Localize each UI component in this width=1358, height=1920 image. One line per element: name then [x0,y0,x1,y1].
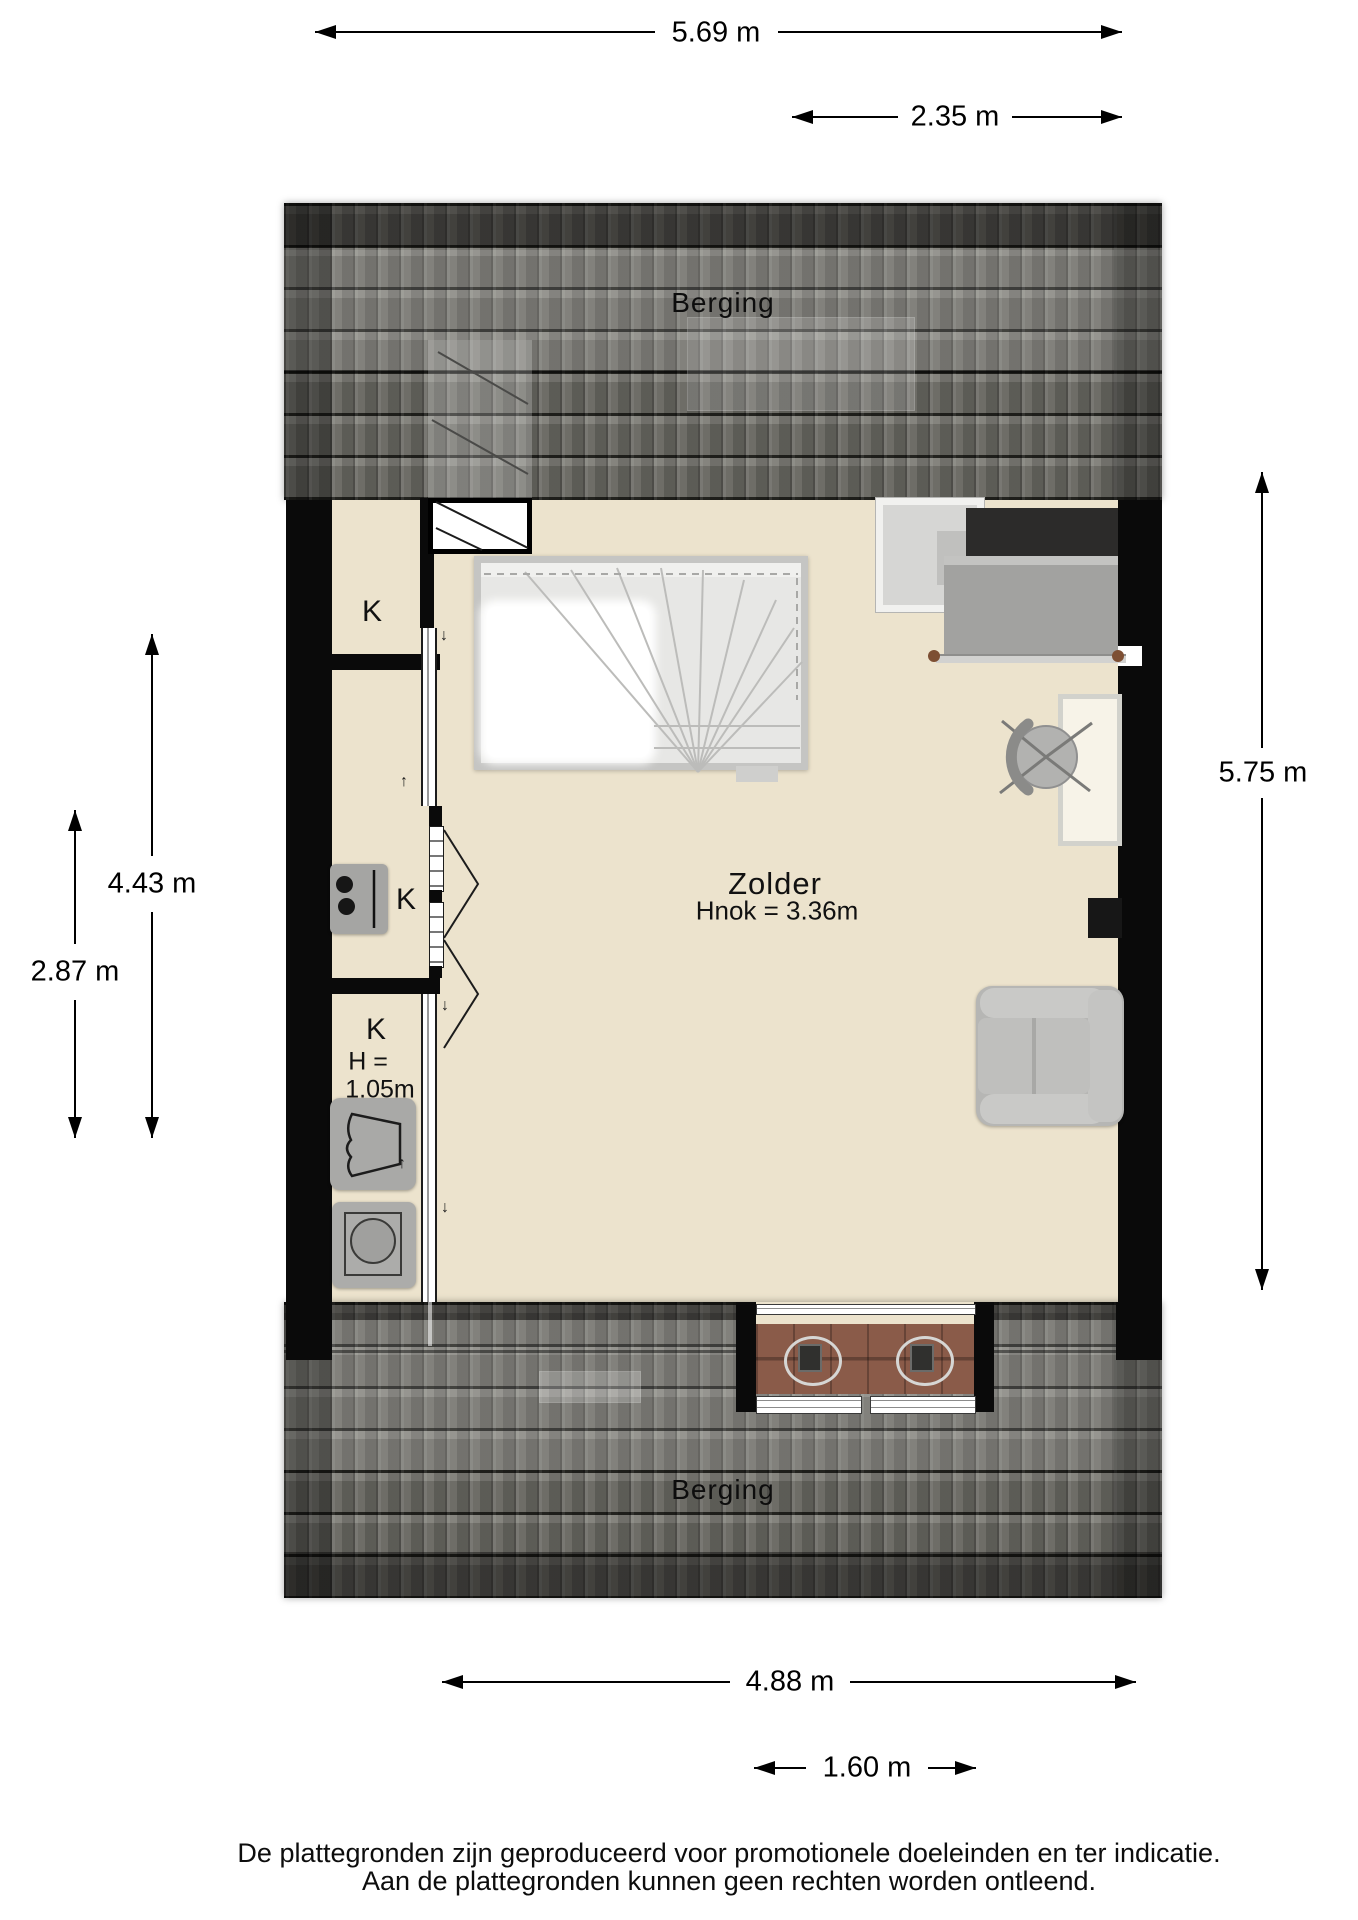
cooktop [330,864,388,934]
arrowhead-left-icon [442,1675,463,1689]
arrowhead-left-icon [315,25,336,39]
armchair-seat-cushions [978,1018,1090,1094]
staircase [474,556,808,770]
burner-icon [338,898,355,915]
dimension-line [1261,798,1263,1290]
room-label-berging-bottom: Berging [284,1474,1162,1506]
arrowhead-right-icon [1115,1675,1136,1689]
door-leaf [429,902,444,968]
arrowhead-down-icon [145,1117,159,1138]
arrowhead-down-icon [68,1117,82,1138]
spotlight-lamp [912,1346,932,1370]
room-label-closet-kitchen: K [396,883,416,917]
roof-light-band [284,1320,1162,1470]
wall-kitchen-bottom [286,978,440,994]
footer-disclaimer-line2: Aan de plattegronden kunnen geen rechten… [100,1866,1358,1897]
arrowhead-right-icon [955,1761,976,1775]
washing-machine [332,1202,416,1288]
closet-height-label: H = [348,1048,388,1077]
roof-ridge-band [284,203,1162,247]
roof-top-band [284,1302,1162,1320]
washer-drum-icon [350,1218,396,1264]
bed-knob-icon [928,650,940,662]
roof-eave-band [284,1552,1162,1598]
arrowhead-up-icon [1255,472,1269,493]
stairwell-void [487,607,649,757]
direction-arrow-icon: ↓ [440,627,448,645]
wall-corner-right [1116,1302,1162,1360]
room-label-berging-top: Berging [284,287,1162,319]
roof-seam [284,1350,1162,1353]
roof-berging-top: Berging [284,203,1162,500]
stair-step-tab [736,766,778,782]
wall-right [1118,500,1162,1320]
door-leaf [429,826,444,892]
dimension-label: 2.35 m [905,101,1006,134]
dimension-line [315,31,655,33]
armchair-backrest [1088,990,1122,1122]
footer-disclaimer-line1: De plattegronden zijn geproduceerd voor … [100,1838,1358,1869]
wall-corner-left [286,1302,332,1360]
burner-icon [336,876,353,893]
dimension-line [442,1681,730,1683]
closet-height-value: 1.05m [345,1076,414,1105]
dormer-roof-patch [688,318,914,410]
desk-chair-seat [1014,725,1078,789]
room-label-closet-low: K [366,1013,386,1047]
track-line [428,1302,432,1346]
dimension-label: 5.75 m [1213,757,1314,790]
balcony-railing [756,1396,862,1414]
direction-arrow-icon: ↓ [441,997,449,1015]
direction-arrow-icon: ↑ [398,1155,406,1173]
wall-balcony-right [974,1302,994,1412]
spotlight-lamp [800,1346,820,1370]
wall-door-post [429,806,442,826]
dimension-label: 5.69 m [666,17,767,50]
floorplan-canvas: 5.69 m 2.35 m 5.75 m 4.43 m 2.87 m 4.88 … [0,0,1358,1920]
arrowhead-right-icon [1101,25,1122,39]
direction-arrow-icon: ↓ [441,1199,449,1217]
chimney-shaft-hatch [428,340,532,498]
direction-arrow-icon: ↑ [400,773,408,791]
stair-top-strip [481,563,801,577]
wall-left [286,500,332,1318]
roof-edge-left [284,203,332,500]
arrowhead-up-icon [68,810,82,831]
bed-blanket [944,556,1118,656]
room-label-closet-top: K [362,595,382,629]
dimension-line [778,31,1122,33]
dimension-line [151,634,153,856]
room-note-zolder: Hnok = 3.36m [696,896,859,927]
bed-foot-rail [936,654,1126,663]
dimension-label: 2.87 m [25,956,126,989]
roof-berging-bottom: Berging [284,1302,1162,1598]
wall-kitchen-top [286,654,440,670]
bed-knob-icon [1112,650,1124,662]
arrowhead-up-icon [145,634,159,655]
dimension-line [1261,472,1263,748]
balcony-railing [870,1396,976,1414]
tv-unit [1088,898,1122,938]
wall-door-post [429,890,442,902]
wall-door-post [429,966,442,978]
bed-fold [944,556,1118,565]
dimension-line [850,1681,1136,1683]
balcony-door-track [756,1304,976,1315]
arrowhead-down-icon [1255,1269,1269,1290]
sliding-door-track [421,994,437,1302]
roof-window [540,1372,640,1402]
dimension-label: 4.88 m [740,1666,841,1699]
arrowhead-right-icon [1101,110,1122,124]
roof-edge-right [1114,203,1162,500]
armchair [976,986,1124,1126]
dimension-label: 1.60 m [817,1752,918,1785]
dimension-line [151,912,153,1138]
wall-balcony-left [736,1302,756,1412]
arrowhead-left-icon [792,110,813,124]
sliding-door-track [421,628,437,806]
dimension-label: 4.43 m [102,868,203,901]
chimney [428,498,532,554]
arrowhead-left-icon [754,1761,775,1775]
sink-unit [330,1098,416,1190]
bed-headboard [966,508,1118,556]
